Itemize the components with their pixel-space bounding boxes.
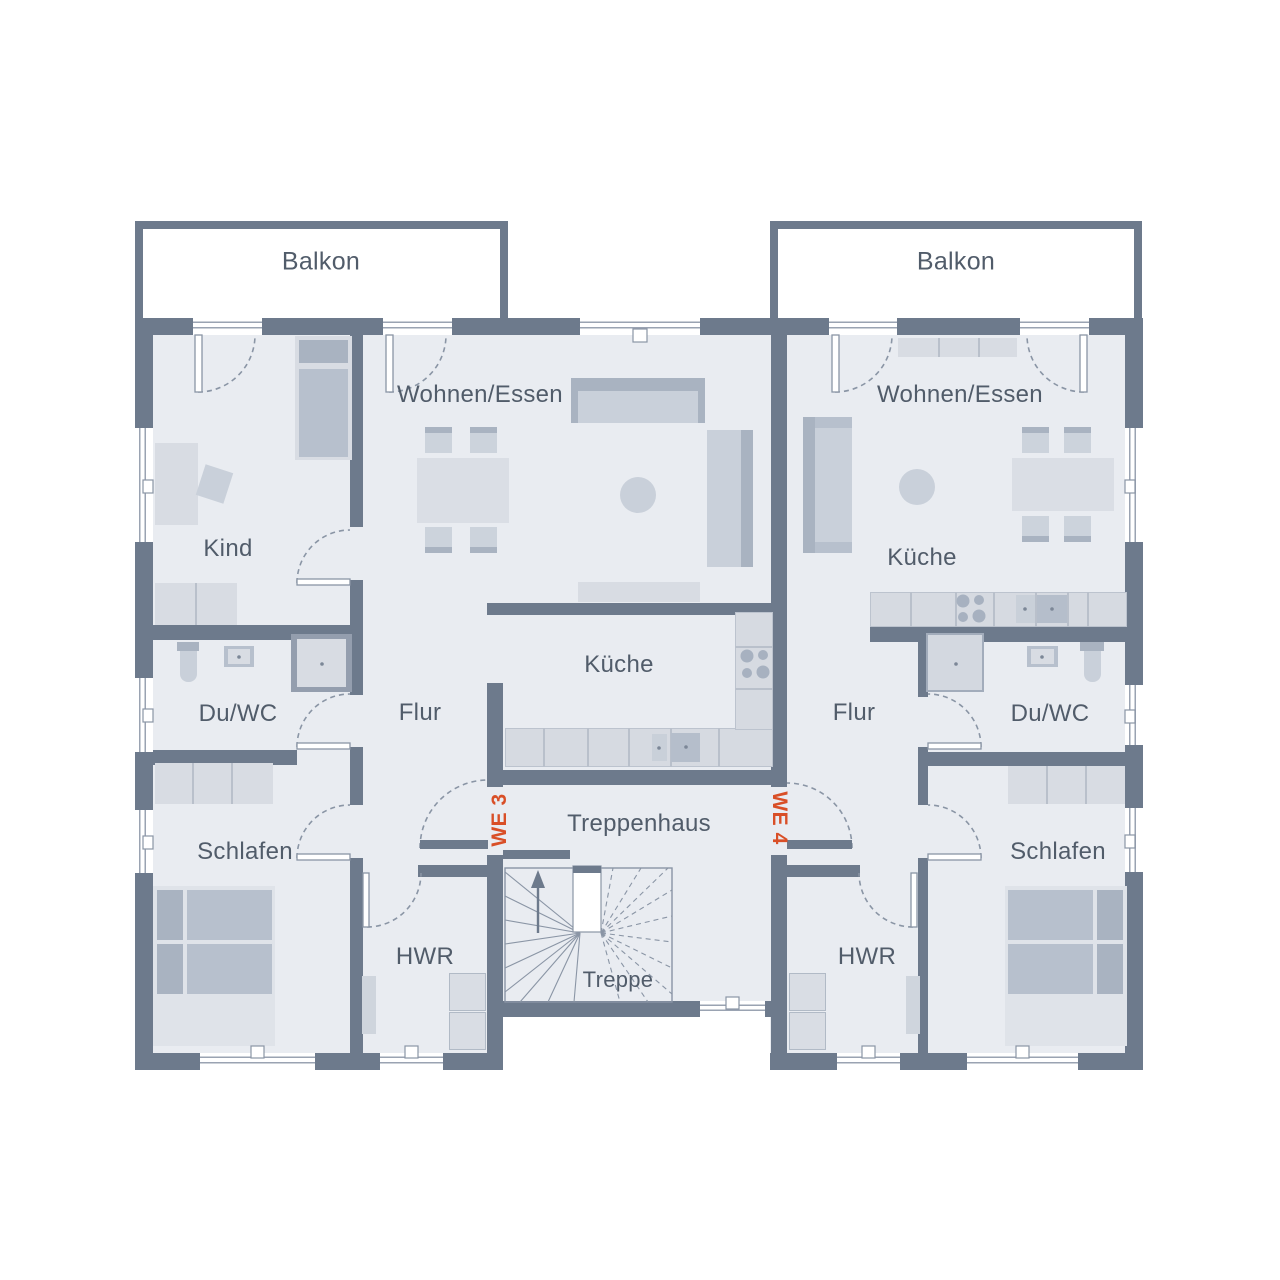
wardrobe-divider <box>192 763 194 804</box>
wardrobe <box>155 763 273 804</box>
mattress <box>299 369 348 457</box>
wall-segment <box>135 873 153 1070</box>
wall-segment <box>350 747 363 805</box>
unit-label-we3: WE 3 <box>488 793 512 846</box>
wardrobe <box>1008 766 1125 804</box>
kitchen-counter <box>735 612 773 730</box>
pillow <box>299 340 348 363</box>
wall-segment <box>487 770 787 785</box>
room-label-living-left: Wohnen/Essen <box>397 381 563 409</box>
exterior-notch <box>503 1017 770 1070</box>
toilet <box>180 651 197 682</box>
wall-segment <box>1125 872 1143 1070</box>
shower-tray <box>297 639 346 687</box>
counter-divider <box>910 592 912 627</box>
pillow <box>1097 890 1123 940</box>
room-label-living-right: Wohnen/Essen <box>877 381 1043 409</box>
chair <box>425 527 452 553</box>
wall-segment <box>1125 542 1143 685</box>
window <box>967 1053 1078 1070</box>
counter-divider <box>1067 592 1069 627</box>
room-label-hall-right: Flur <box>833 699 876 727</box>
mattress <box>187 890 272 940</box>
dryer <box>449 1012 486 1050</box>
chair <box>1022 427 1049 453</box>
room-label-hall-left: Flur <box>399 699 442 727</box>
coffee-table <box>899 469 935 505</box>
washing-machine <box>449 973 486 1011</box>
utility-cabinet <box>906 976 920 1034</box>
window <box>1125 685 1143 745</box>
room-label-bath-left: Du/WC <box>199 700 278 728</box>
room-label-balcony-left: Balkon <box>282 248 360 277</box>
tv-board <box>578 582 700 602</box>
counter-divider <box>735 688 773 690</box>
balcony-door-window <box>1020 318 1089 335</box>
room-label-utility-right: HWR <box>838 943 896 971</box>
room-label-stair: Treppe <box>583 967 654 993</box>
wall-segment <box>135 1053 502 1070</box>
room-label-kitchen-left: Küche <box>584 651 654 679</box>
window <box>135 678 153 752</box>
wardrobe-divider <box>1046 766 1048 804</box>
toilet-tank <box>177 642 199 651</box>
dryer <box>789 1012 826 1050</box>
sink-basin <box>228 649 250 664</box>
wall-segment <box>771 855 787 1070</box>
wall-segment <box>487 855 503 1070</box>
wall-segment <box>487 603 773 615</box>
dining-table <box>417 458 509 523</box>
window <box>135 810 153 873</box>
dishwasher <box>671 733 700 762</box>
floor-plan: Balkon Balkon Wohnen/Essen Wohnen/Essen … <box>0 0 1280 1280</box>
wall-segment <box>770 1053 1142 1070</box>
kitchen-counter <box>505 728 773 767</box>
room-label-balcony-right: Balkon <box>917 248 995 277</box>
sideboard <box>898 338 1017 357</box>
washing-machine <box>789 973 826 1011</box>
wardrobe-divider <box>231 763 233 804</box>
utility-cabinet <box>362 976 376 1034</box>
wardrobe-divider <box>195 583 197 625</box>
wall-segment <box>771 333 787 787</box>
balcony-door-window <box>829 318 897 335</box>
desk <box>155 443 198 525</box>
window <box>837 1053 900 1070</box>
wall-segment <box>1125 318 1143 428</box>
window <box>380 1053 443 1070</box>
counter-divider <box>735 646 773 648</box>
room-label-bath-right: Du/WC <box>1011 700 1090 728</box>
counter-divider <box>628 728 630 767</box>
sink-cabinet <box>1016 595 1035 623</box>
balcony-door-window <box>193 318 262 335</box>
room-label-bedroom-right: Schlafen <box>1010 838 1106 866</box>
window <box>200 1053 315 1070</box>
counter-divider <box>718 728 720 767</box>
chair <box>470 527 497 553</box>
unit-label-we4: WE 4 <box>767 791 791 844</box>
wall-segment <box>787 865 860 877</box>
sideboard-divider <box>978 338 980 357</box>
toilet-tank <box>1080 642 1104 651</box>
chair <box>1064 427 1091 453</box>
mattress <box>1008 890 1093 940</box>
sink-basin <box>1031 649 1054 664</box>
wall-segment <box>135 752 153 810</box>
balcony-wall <box>135 221 508 229</box>
toilet <box>1084 651 1101 682</box>
wall-segment <box>135 318 153 428</box>
building-footprint <box>135 318 1142 1070</box>
sofa-armrest <box>698 378 705 423</box>
wall-segment <box>918 752 1127 766</box>
window <box>135 428 153 542</box>
wall-segment <box>135 542 153 678</box>
balcony-wall <box>770 221 1142 229</box>
chair <box>425 427 452 453</box>
dining-table <box>1012 458 1114 511</box>
room-label-bedroom-left: Schlafen <box>197 838 293 866</box>
sofa-armrest <box>571 378 578 423</box>
sofa-back <box>741 430 753 567</box>
room-label-kitchen-right: Küche <box>887 544 957 572</box>
balcony-door-window <box>383 318 452 335</box>
counter-divider <box>993 592 995 627</box>
oven <box>1037 595 1067 623</box>
sideboard-divider <box>938 338 940 357</box>
sofa-back <box>803 417 815 553</box>
pillow <box>157 944 183 994</box>
chair <box>470 427 497 453</box>
pillow <box>1097 944 1123 994</box>
counter-divider <box>955 592 957 627</box>
wall-segment <box>870 627 1127 642</box>
stair-half-wall <box>503 850 570 859</box>
chair <box>1022 516 1049 542</box>
mattress <box>1008 944 1093 994</box>
window <box>1125 808 1143 872</box>
wall-segment <box>452 318 580 335</box>
room-label-child: Kind <box>203 535 252 563</box>
counter-divider <box>543 728 545 767</box>
mattress <box>187 944 272 994</box>
wall-segment <box>262 318 383 335</box>
pillow <box>157 890 183 940</box>
room-label-utility-left: HWR <box>396 943 454 971</box>
sofa <box>571 391 705 423</box>
window <box>700 1001 765 1017</box>
wardrobe-divider <box>1085 766 1087 804</box>
sink-cabinet <box>652 734 667 761</box>
window <box>580 318 700 335</box>
counter-divider <box>587 728 589 767</box>
sofa <box>815 428 852 542</box>
sofa-back <box>571 378 705 391</box>
wall-segment <box>897 318 1020 335</box>
counter-divider <box>1087 592 1089 627</box>
wall-segment <box>1125 745 1143 808</box>
shower <box>926 633 984 692</box>
coffee-table <box>620 477 656 513</box>
chair <box>1064 516 1091 542</box>
window <box>1125 428 1143 542</box>
room-label-stair-hall: Treppenhaus <box>567 810 711 838</box>
wall-segment <box>700 318 830 335</box>
